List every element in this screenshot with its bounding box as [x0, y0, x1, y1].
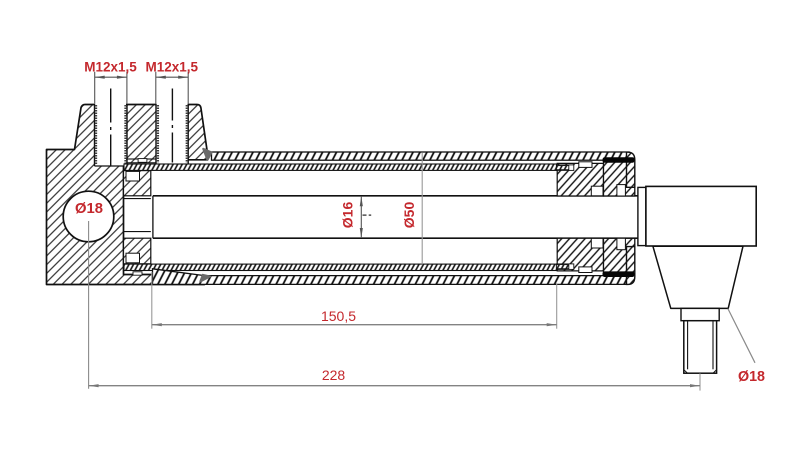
svg-text:Ø18: Ø18	[738, 369, 765, 385]
svg-text:150,5: 150,5	[321, 308, 356, 324]
svg-text:Ø16: Ø16	[340, 202, 356, 229]
svg-text:M12x1,5: M12x1,5	[84, 60, 137, 75]
svg-text:Ø18: Ø18	[75, 201, 103, 217]
svg-text:228: 228	[322, 367, 346, 383]
svg-text:Ø50: Ø50	[401, 202, 417, 229]
svg-text:M12x1,5: M12x1,5	[146, 60, 199, 75]
